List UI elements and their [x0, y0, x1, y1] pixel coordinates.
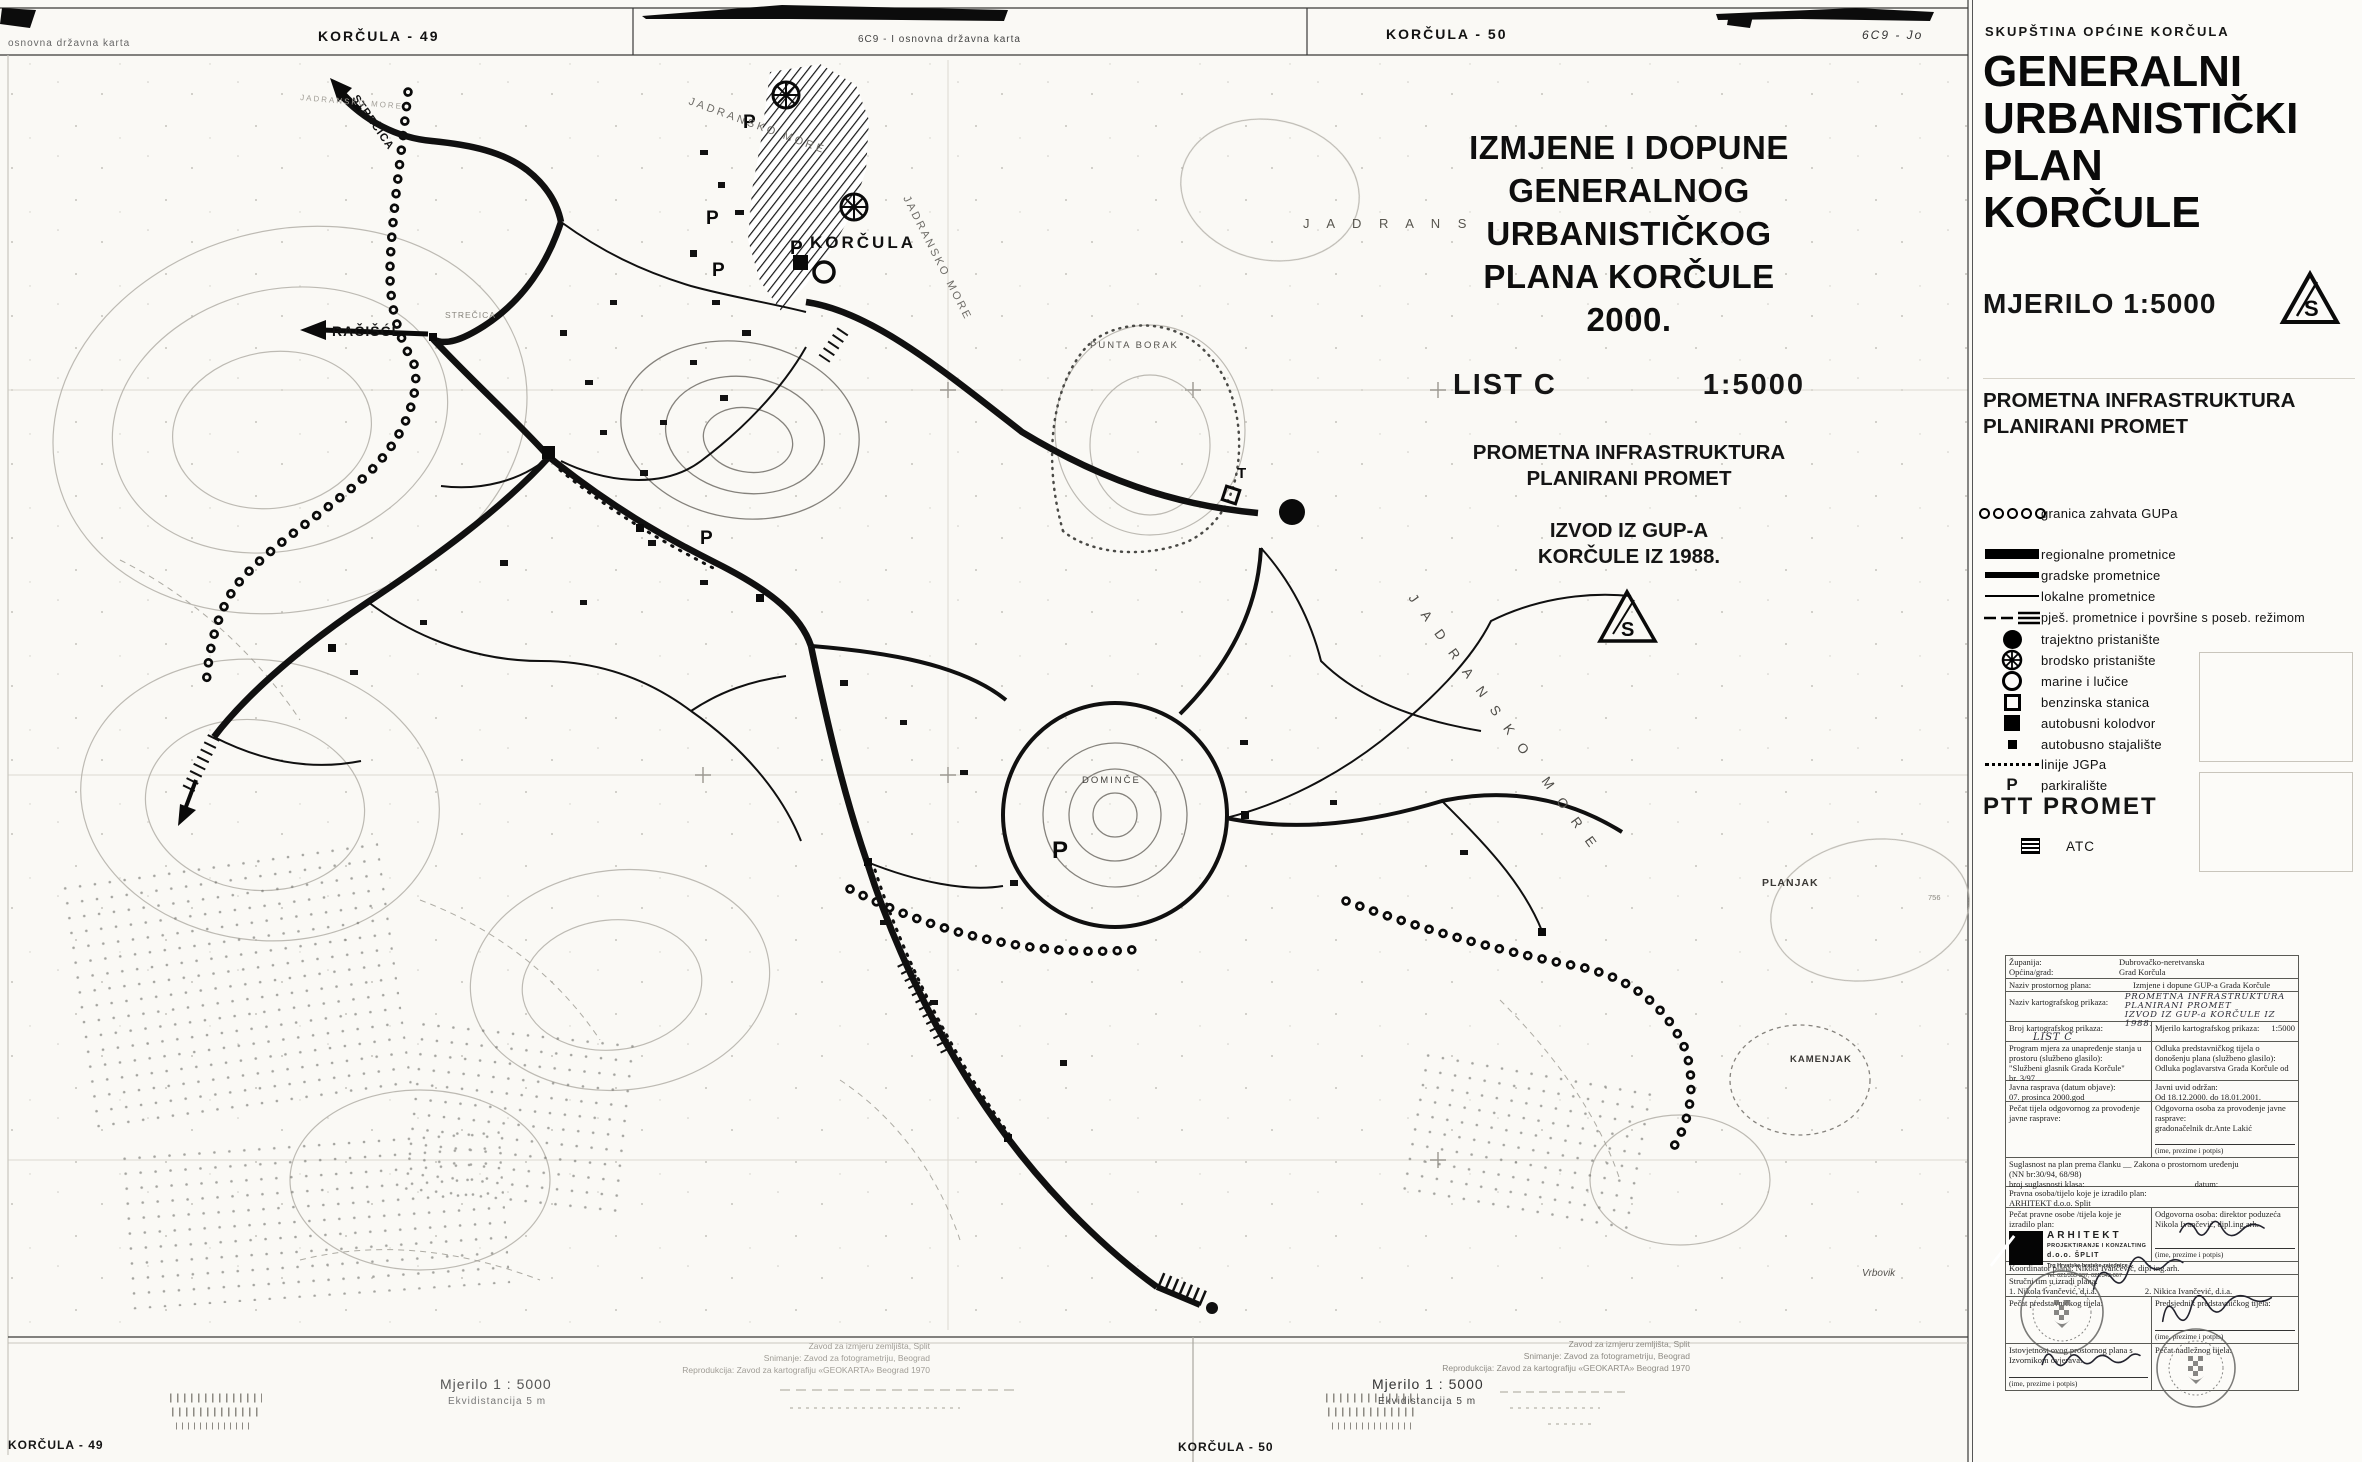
- mayor-name: gradonačelnik dr.Ante Lakić: [2155, 1123, 2295, 1133]
- panel-title-line3: PLAN: [1983, 142, 2298, 189]
- title-line: GENERALNOG: [1443, 169, 1815, 212]
- empty-box-2: [2199, 772, 2353, 872]
- sheet-scale: 1:5000: [1703, 369, 1805, 402]
- legend-label: trajektno pristanište: [2041, 632, 2160, 647]
- consent-line1: Suglasnost na plan prema članku __ Zakon…: [2009, 1159, 2295, 1169]
- logo-line2: PROJEKTIRANJE I KONZALTING: [2047, 1241, 2146, 1251]
- panel-divider: [1983, 378, 2355, 379]
- ptt-section-title: PTT PROMET: [1983, 793, 2158, 821]
- credit-line: Snimanje: Zavod za fotogrametriju, Beogr…: [620, 1352, 930, 1364]
- header-code-right: 6C9 - Jo: [1862, 28, 1923, 42]
- table-row-authenticity: Istovjetnost ovog prostornog plana s Izv…: [2006, 1344, 2298, 1390]
- bottom-hatch-marks: [170, 1398, 1418, 1426]
- debate-stamp-label: Pečat tijela odgovornog za provođenje ja…: [2009, 1103, 2148, 1123]
- table-row-debate-stamp: Pečat tijela odgovornog za provođenje ja…: [2006, 1102, 2298, 1158]
- footer-equidistance-left: Ekvidistancija 5 m: [448, 1396, 546, 1407]
- label-punta-borak: PUNTA BORAK: [1090, 340, 1179, 351]
- program-gazette: "Službeni glasnik Grada Korčule": [2009, 1063, 2148, 1073]
- legend-row-city: gradske prometnice: [1983, 564, 2353, 586]
- credit-line: Zavod za izmjeru zemljišta, Split: [1380, 1338, 1690, 1350]
- table-row-author-stamp: Pečat pravne osobe /tijela koje je izrad…: [2006, 1208, 2298, 1262]
- jgp-lines-icon: [1983, 763, 2041, 766]
- map-scale-label: Mjerilo kartografskog prikaza:: [2155, 1023, 2259, 1040]
- table-row-plan-name: Naziv prostornog plana: Izmjene i dopune…: [2006, 979, 2298, 992]
- table-row-council-stamp: Pečat predstavničkog tijela: Predsjednik…: [2006, 1297, 2298, 1344]
- header-sheet-50: KORČULA - 50: [1386, 26, 1508, 42]
- footer-credits-left: Zavod za izmjeru zemljišta, Split Sniman…: [620, 1340, 930, 1376]
- panel-title-line2: URBANISTIČKI: [1983, 95, 2298, 142]
- footer-scale-left: Mjerilo 1 : 5000: [440, 1376, 552, 1392]
- credit-line: Zavod za izmjeru zemljišta, Split: [620, 1340, 930, 1352]
- signature-caption: (ime, prezime i potpis): [2155, 1330, 2295, 1342]
- director-label: Odgovorna osoba: direktor poduzeća: [2155, 1209, 2295, 1219]
- author-stamp-label: Pečat pravne osobe /tijela koje je izrad…: [2009, 1209, 2148, 1229]
- decision-label: Odluka predstavničkog tijela o donošenju…: [2155, 1043, 2295, 1063]
- label-planjak: PLANJAK: [1762, 877, 1819, 889]
- municipality-value: Grad Korčula: [2119, 967, 2166, 977]
- table-row-public-debate: Javna rasprava (datum objave): 07. prosi…: [2006, 1081, 2298, 1102]
- signature-caption: (ime, prezime i potpis): [2155, 1144, 2295, 1156]
- team-label: Stručni tim u izradi plana:: [2009, 1276, 2295, 1286]
- svg-text:P: P: [790, 238, 803, 259]
- consent-line2: (NN br:30/94, 68/98): [2009, 1169, 2295, 1179]
- arhitekt-logo-mark: [2009, 1231, 2043, 1265]
- panel-section-line1: PROMETNA INFRASTRUKTURA: [1983, 388, 2295, 414]
- marina-icon: [1983, 671, 2041, 691]
- subtitle-planned-traffic: PLANIRANI PROMET: [1443, 466, 1815, 492]
- footer-credits-right: Zavod za izmjeru zemljišta, Split Sniman…: [1380, 1338, 1690, 1374]
- bus-stop-icon: [1983, 740, 2041, 749]
- svg-text:S: S: [2304, 296, 2319, 321]
- atc-icon: [2021, 838, 2040, 854]
- gas-station-icon: [1983, 694, 2041, 711]
- legend-label: lokalne prometnice: [2041, 589, 2156, 604]
- ship-port-icon: [1983, 649, 2041, 671]
- panel-org-label: SKUPŠTINA OPĆINE KORČULA: [1985, 24, 2230, 39]
- authenticity-line1: Istovjetnost ovog prostornog plana s: [2009, 1345, 2148, 1355]
- credit-line: Reprodukcija: Zavod za kartografiju «GEO…: [1380, 1362, 1690, 1374]
- label-vrbovik: Vrbovik: [1862, 1268, 1896, 1279]
- header-code-center: 6C9 - I osnovna državna karta: [858, 34, 1021, 45]
- program-label: Program mjera za unapređenje stanja u pr…: [2009, 1043, 2148, 1063]
- inspection-dates: Od 18.12.2000. do 18.01.2001.: [2155, 1092, 2295, 1102]
- plan-documentation-table: Županija:Dubrovačko-neretvanska Općina/g…: [2005, 955, 2299, 1391]
- decision-value: Odluka poglavarstva Grada Korčule od: [2155, 1063, 2295, 1073]
- authenticity-line2: Izvornikom ovjerava:: [2009, 1355, 2148, 1365]
- logo-name: ARHITEKT: [2047, 1231, 2146, 1241]
- svg-text:P: P: [706, 208, 719, 229]
- legend-label: benzinska stanica: [2041, 695, 2149, 710]
- legend-label: gradske prometnice: [2041, 568, 2161, 583]
- title-line: PLANA KORČULE: [1443, 255, 1815, 298]
- subtitle-izvod2: KORČULE IZ 1988.: [1443, 544, 1815, 570]
- header-left-note: osnovna državna karta: [8, 38, 130, 49]
- svg-text:P: P: [700, 528, 713, 549]
- credit-line: Reprodukcija: Zavod za kartografiju «GEO…: [620, 1364, 930, 1376]
- svg-text:S: S: [1621, 619, 1634, 641]
- logo-line3: d.o.o. ŠPLIT: [2047, 1251, 2146, 1261]
- legend-label: regionalne prometnice: [2041, 547, 2176, 562]
- atc-row: ATC: [1983, 838, 2095, 854]
- pedestrian-path-icon: [1983, 611, 2041, 625]
- footer-scale-right: Mjerilo 1 : 5000: [1372, 1376, 1484, 1392]
- panel-title-line1: GENERALNI: [1983, 48, 2298, 95]
- atc-label: ATC: [2066, 839, 2095, 854]
- coordinator-value: Koordinator plana: Nikola Ivančević, dip…: [2009, 1263, 2295, 1273]
- legend-row-local: lokalne prometnice: [1983, 585, 2353, 607]
- authority-stamp-label: Pečat nadležnog tijela:: [2155, 1345, 2295, 1355]
- legend-row-boundary: granica zahvata GUPa: [1983, 502, 2353, 524]
- signature-caption: (ime, prezime i potpis): [2009, 1377, 2148, 1389]
- author-label: Pravna osoba/tijelo koje je izradilo pla…: [2009, 1188, 2295, 1198]
- svg-text:P: P: [1052, 837, 1068, 864]
- subtitle-izvod: IZVOD IZ GUP-A: [1443, 518, 1815, 544]
- t-junction-mark: T: [1237, 465, 1246, 482]
- north-arrow-icon: S: [2277, 268, 2343, 328]
- table-row-program: Program mjera za unapređenje stanja u pr…: [2006, 1042, 2298, 1081]
- team-member-2: 2. Nikica Ivančević, d.i.a.: [2145, 1286, 2232, 1296]
- title-line: IZMJENE I DOPUNE: [1443, 126, 1815, 169]
- plan-name-label: Naziv prostornog plana:: [2009, 980, 2133, 990]
- legend-label: brodsko pristanište: [2041, 653, 2156, 668]
- map-name-label: Naziv kartografskog prikaza:: [2009, 993, 2125, 1020]
- legend-label: granica zahvata GUPa: [2041, 506, 2178, 521]
- legend-label: autobusno stajalište: [2041, 737, 2162, 752]
- regional-road-icon: [1983, 549, 2041, 559]
- parking-icon: P: [1983, 775, 2041, 795]
- label-kamenjak: KAMENJAK: [1790, 1054, 1852, 1065]
- label-domince: DOMINČE: [1082, 775, 1141, 786]
- footer-sheet-49: KORČULA - 49: [8, 1438, 104, 1452]
- scanned-map-sheet: P P P P P P T S KORČULA PUNTA BORAK DOMI…: [0, 0, 2362, 1462]
- sheet-designation: LIST C: [1453, 369, 1557, 402]
- subtitle-infrastructure: PROMETNA INFRASTRUKTURA: [1443, 440, 1815, 466]
- legend-label: autobusni kolodvor: [2041, 716, 2156, 731]
- label-strecica-area: STREČICA: [445, 310, 496, 320]
- author-value: ARHITEKT d.o.o. Split: [2009, 1198, 2295, 1208]
- director-name: Nikola Ivančević, dipl.ing.arh.: [2155, 1219, 2295, 1229]
- legend-label: pješ. prometnice i površine s poseb. rež…: [2041, 611, 2305, 625]
- credit-line: Snimanje: Zavod za fotogrametriju, Beogr…: [1380, 1350, 1690, 1362]
- faint-footer-marks: [780, 1390, 1630, 1424]
- municipality-label: Općina/grad:: [2009, 967, 2119, 977]
- plan-name-value: Izmjene i dopune GUP-a Grada Korčule: [2133, 980, 2270, 990]
- label-elevation: 756: [1928, 893, 1941, 902]
- legend-label: linije JGPa: [2041, 757, 2106, 772]
- legend-row-ferry: trajektno pristanište: [1983, 628, 2353, 650]
- local-road-icon: [1983, 595, 2041, 598]
- table-row-county: Županija:Dubrovačko-neretvanska Općina/g…: [2006, 956, 2298, 979]
- county-label: Županija:: [2009, 957, 2119, 967]
- city-road-icon: [1983, 572, 2041, 578]
- ferry-port-icon: [1983, 630, 2041, 649]
- boundary-dots-icon: [1983, 508, 2041, 519]
- county-value: Dubrovačko-neretvanska: [2119, 957, 2204, 967]
- panel-title-line4: KORČULE: [1983, 189, 2298, 236]
- table-row-consent: Suglasnost na plan prema članku __ Zakon…: [2006, 1158, 2298, 1187]
- title-line: URBANISTIČKOG: [1443, 212, 1815, 255]
- bus-terminal-icon: [1983, 715, 2041, 731]
- title-year: 2000.: [1443, 298, 1815, 341]
- signature-caption: (ime, prezime i potpis): [2155, 1248, 2295, 1260]
- map-title-block: IZMJENE I DOPUNE GENERALNOG URBANISTIČKO…: [1443, 126, 1815, 570]
- table-row-team: Stručni tim u izradi plana: 1. Nikola Iv…: [2006, 1275, 2298, 1297]
- footer-sheet-50: KORČULA - 50: [1178, 1440, 1274, 1454]
- panel-main-title: GENERALNI URBANISTIČKI PLAN KORČULE: [1983, 48, 2298, 236]
- table-row-map-name: Naziv kartografskog prikaza: PROMETNA IN…: [2006, 992, 2298, 1022]
- legend-label: parkiralište: [2041, 778, 2107, 793]
- ferry-terminal-icon: [1279, 499, 1305, 525]
- debate-label: Javna rasprava (datum objave):: [2009, 1082, 2148, 1092]
- debate-date: 07. prosinca 2000.god: [2009, 1092, 2148, 1102]
- council-stamp-label: Pečat predstavničkog tijela:: [2009, 1298, 2148, 1308]
- label-racisce: RAČIŠĆE: [332, 322, 402, 339]
- council-president-label: Predsjednik predstavničkog tijela:: [2155, 1298, 2295, 1308]
- header-sheet-49: KORČULA - 49: [318, 28, 440, 44]
- panel-section-title: PROMETNA INFRASTRUKTURA PLANIRANI PROMET: [1983, 388, 2295, 440]
- panel-section-line2: PLANIRANI PROMET: [1983, 414, 2295, 440]
- table-row-coordinator: Koordinator plana: Nikola Ivančević, dip…: [2006, 1262, 2298, 1275]
- team-member-1: 1. Nikola Ivančević, d.i.a.: [2009, 1286, 2097, 1296]
- map-scale-value: 1:5000: [2271, 1023, 2295, 1040]
- table-row-author: Pravna osoba/tijelo koje je izradilo pla…: [2006, 1187, 2298, 1208]
- legend-row-regional: regionalne prometnice: [1983, 543, 2353, 565]
- table-row-map-number: Broj kartografskog prikaza: LIST C Mjeri…: [2006, 1022, 2298, 1042]
- svg-text:P: P: [712, 260, 725, 281]
- responsible-person-label: Odgovorna osoba za provođenje javne rasp…: [2155, 1103, 2295, 1123]
- empty-box-1: [2199, 652, 2353, 762]
- legend-row-pedestrian: pješ. prometnice i površine s poseb. rež…: [1983, 607, 2353, 629]
- footer-equidistance-right: Ekvidistancija 5 m: [1378, 1396, 1476, 1407]
- panel-scale-label: MJERILO 1:5000: [1983, 288, 2216, 320]
- label-town-korcula: KORČULA: [810, 233, 916, 252]
- legend-label: marine i lučice: [2041, 674, 2129, 689]
- inspection-label: Javni uvid održan:: [2155, 1082, 2295, 1092]
